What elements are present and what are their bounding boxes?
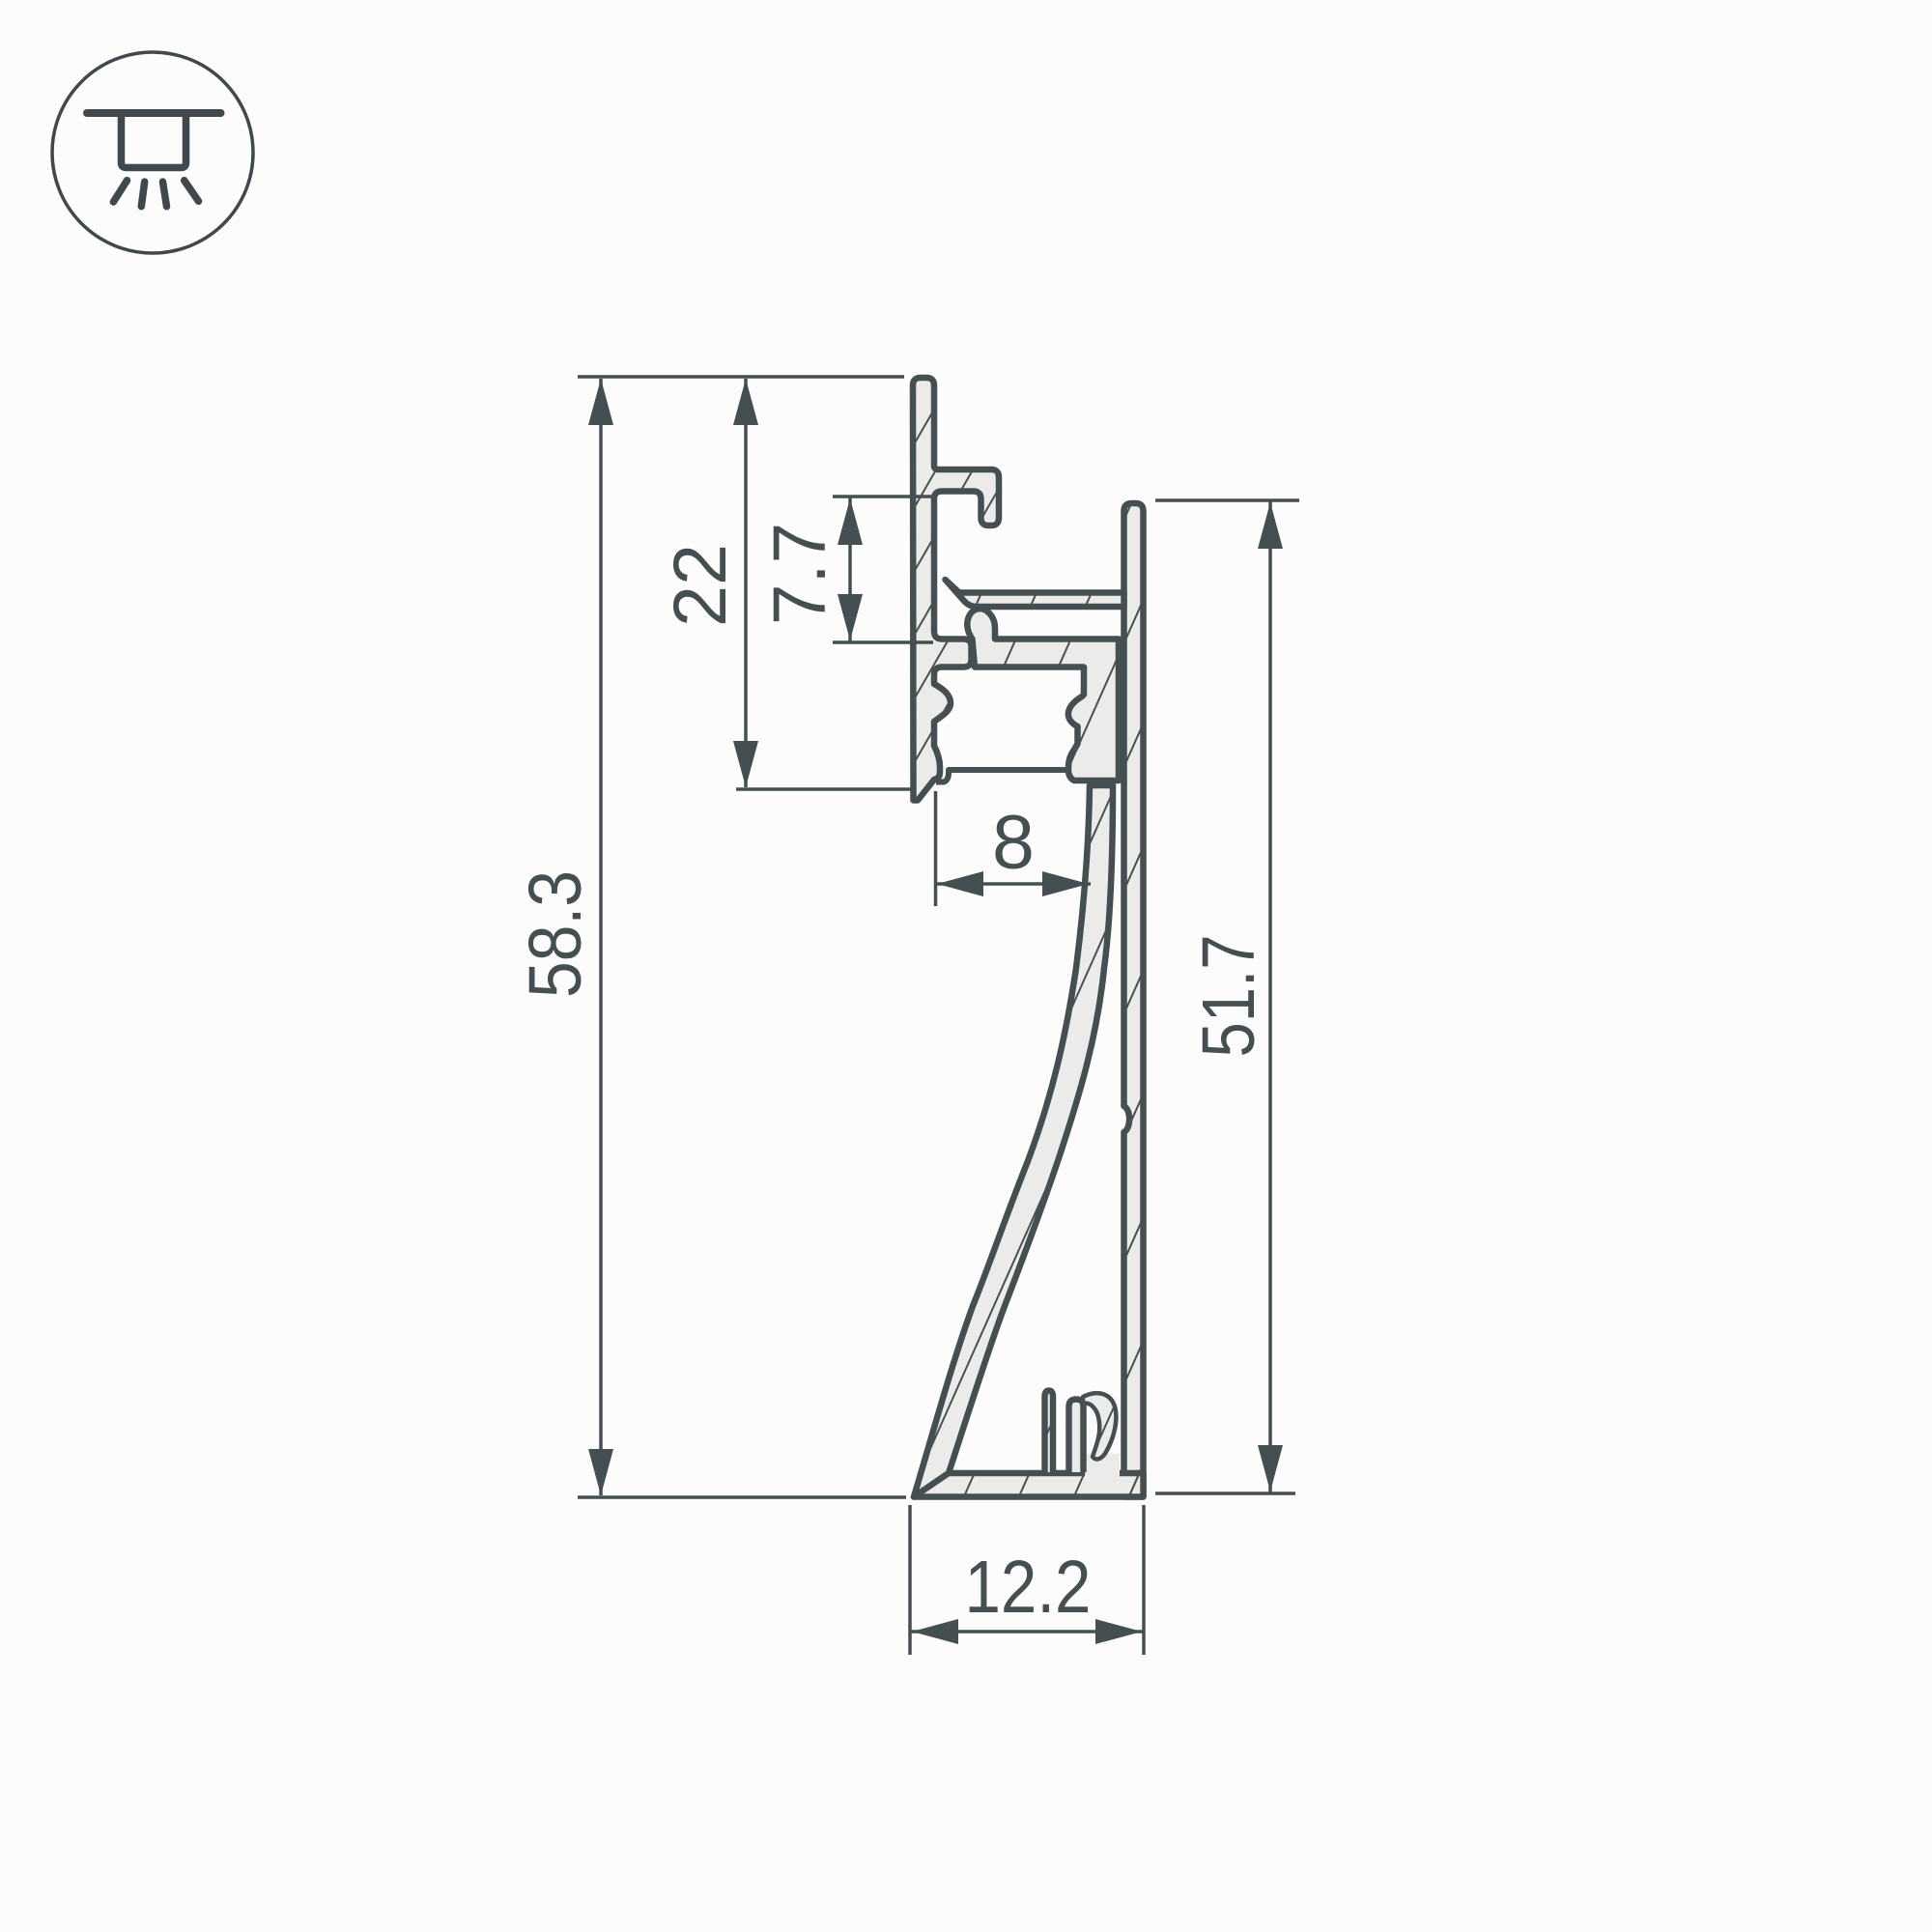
svg-text:22: 22 xyxy=(659,544,742,627)
svg-text:7.7: 7.7 xyxy=(758,523,841,625)
svg-text:58.3: 58.3 xyxy=(514,870,597,998)
svg-text:12.2: 12.2 xyxy=(965,1546,1092,1629)
svg-text:8: 8 xyxy=(992,799,1035,885)
svg-text:51.7: 51.7 xyxy=(1187,935,1270,1058)
